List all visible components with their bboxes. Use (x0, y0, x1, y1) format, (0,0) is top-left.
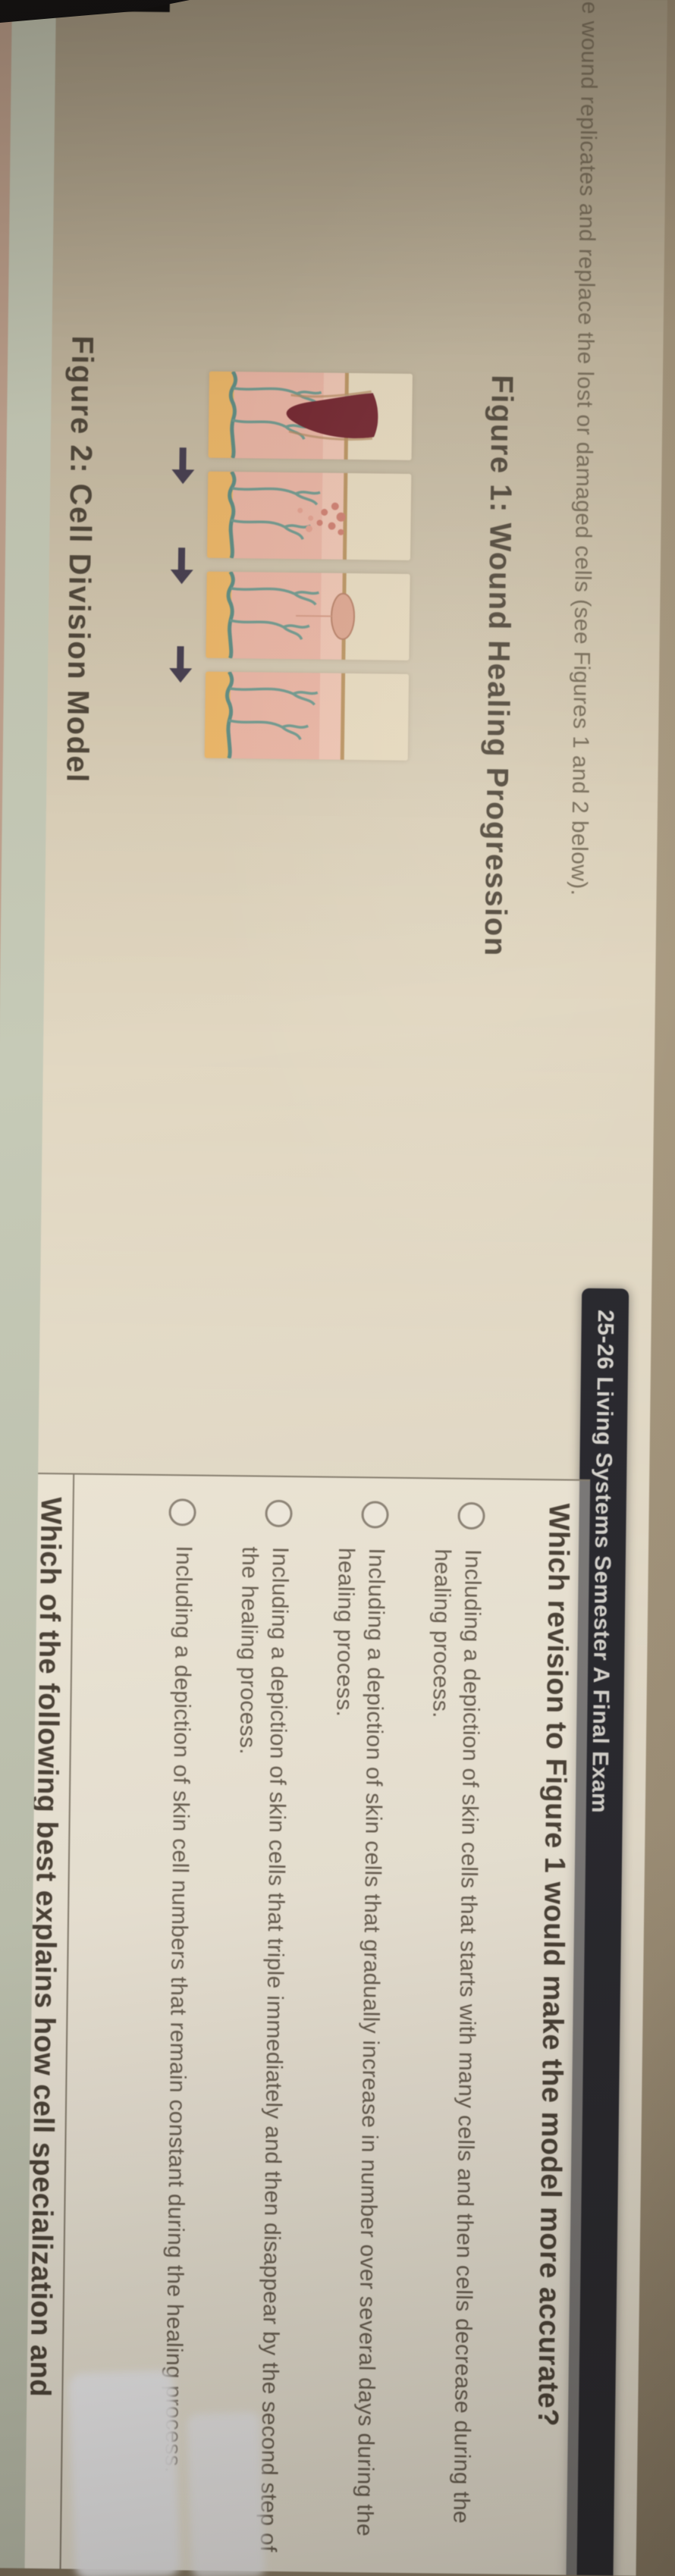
arrow-right-icon (169, 646, 193, 682)
radio-button-icon[interactable] (168, 1498, 196, 1526)
closing-wound-bump (331, 594, 355, 639)
arrow-right-icon (171, 548, 194, 584)
photo-of-screen: 25-26 Living Systems Semester A Final Ex… (0, 0, 675, 2576)
stage-1-wound-clot-image (209, 372, 413, 460)
stage-2-granulation-image (207, 472, 411, 560)
figure2-caption: Figure 2: Cell Division Model (59, 335, 99, 783)
arrow-right-icon (171, 447, 195, 484)
stage-4-healed-image (205, 672, 409, 761)
exam-page: 25-26 Living Systems Semester A Final Ex… (0, 0, 667, 2576)
glare-reflection (187, 2411, 265, 2576)
skin-diagram-scab (206, 572, 410, 660)
answer-option-b[interactable]: Including a depiction of skin cells that… (319, 1501, 392, 2563)
answer-option-a[interactable]: Including a depiction of skin cells that… (415, 1501, 488, 2564)
radio-button-icon[interactable] (361, 1501, 388, 1528)
answer-option-label: Including a depiction of skin cells that… (222, 1546, 295, 2556)
answer-options-list: Including a depiction of skin cells that… (121, 1498, 488, 2565)
answer-option-label: Including a depiction of skin cells that… (319, 1548, 391, 2557)
radio-button-icon[interactable] (457, 1502, 485, 1530)
answer-option-label: Including a depiction of skin cells that… (415, 1548, 488, 2558)
skin-diagram-healed (205, 672, 409, 761)
figure1-caption: Figure 1: Wound Healing Progression (478, 375, 519, 957)
radio-button-icon[interactable] (265, 1500, 292, 1527)
wound-healing-figure (205, 372, 413, 774)
skin-diagram-clot (209, 372, 413, 460)
skin-diagram-granulation (207, 472, 411, 560)
question-stem-text: he wound replicates and replace the lost… (566, 0, 603, 896)
glare-reflection (68, 2370, 180, 2576)
answer-option-c[interactable]: Including a depiction of skin cells that… (222, 1499, 296, 2562)
stage-3-scab-image (206, 572, 410, 660)
